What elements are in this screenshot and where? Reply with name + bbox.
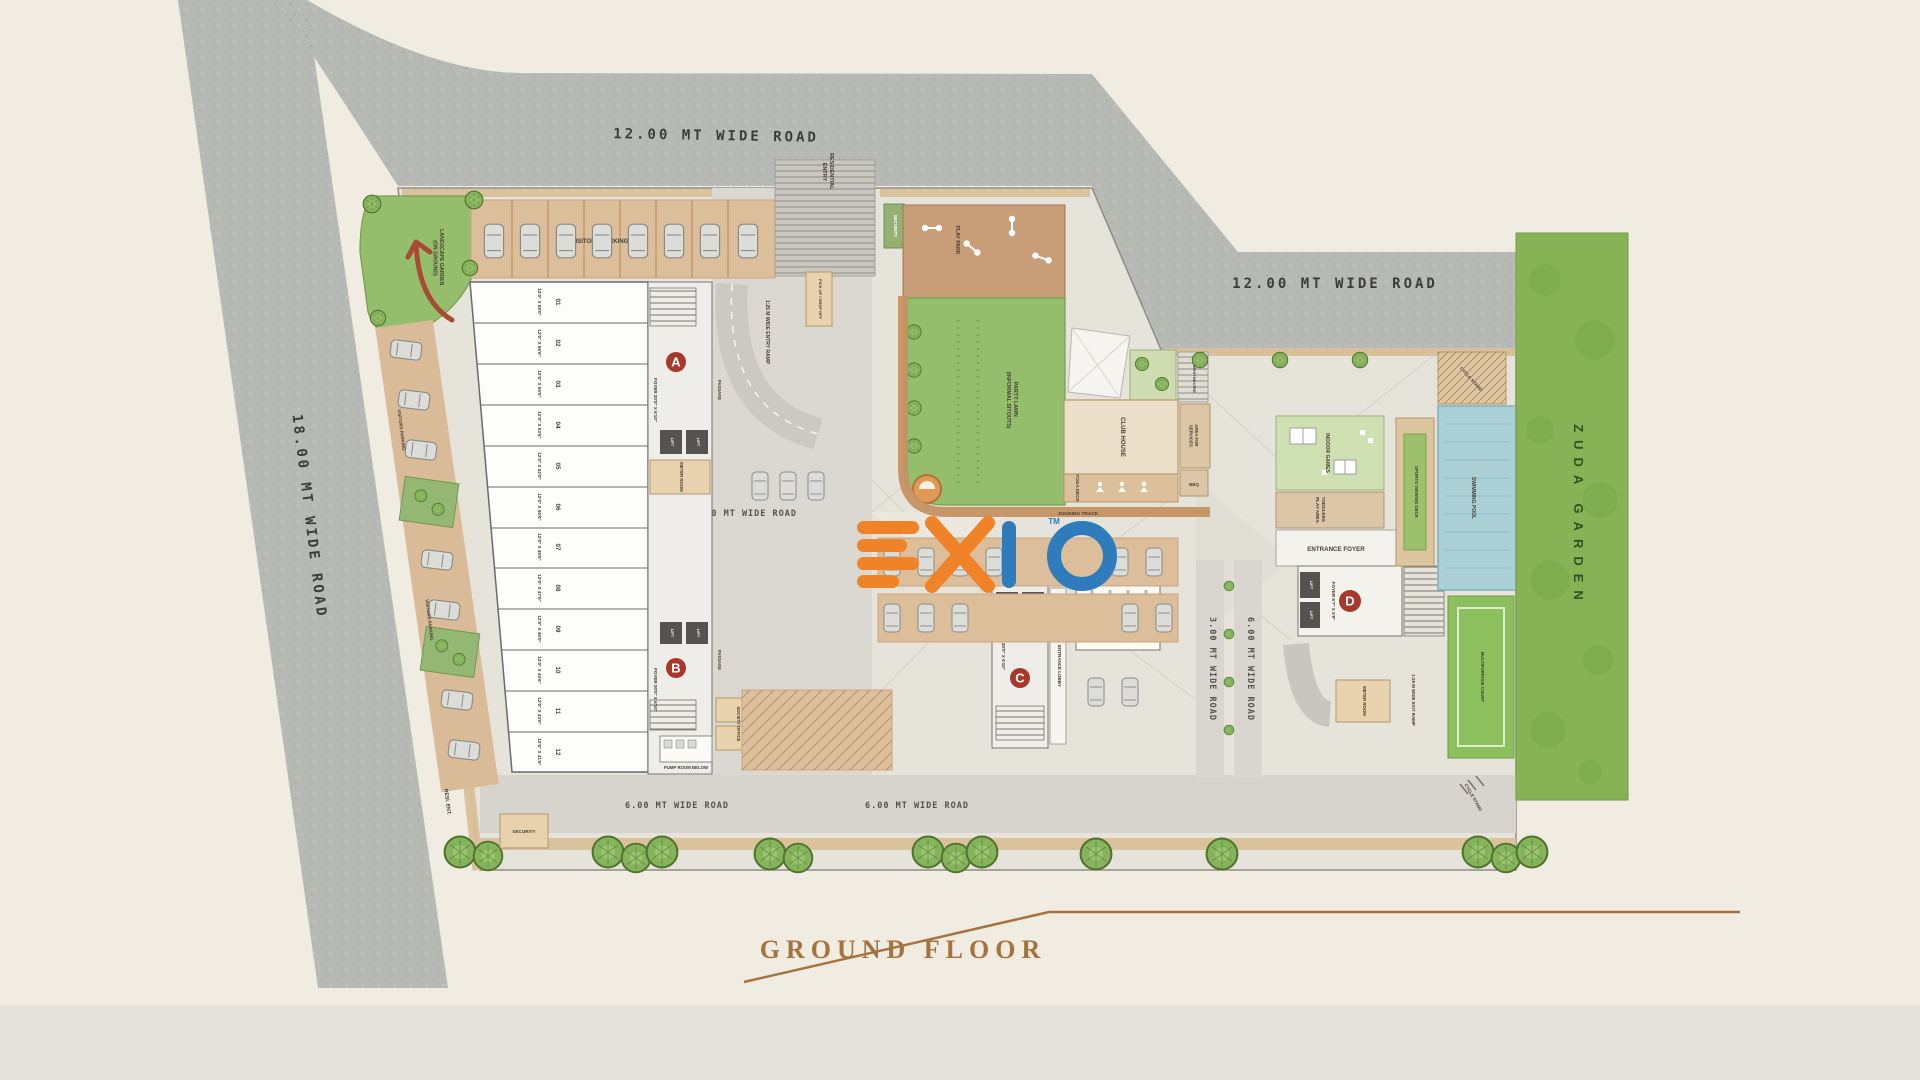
shop-number: 10 [554, 667, 561, 674]
play-park: PLAY PARK [903, 205, 1065, 298]
shop-dim: 12'0" X 55'0" [537, 370, 542, 398]
indoor-games-label: INDOOR GAMES [1324, 433, 1330, 473]
lift-b2-label: LIFT [696, 629, 701, 638]
tower-d-letter: D [1345, 594, 1354, 609]
toddlers-room [1276, 492, 1384, 528]
shop-dim: 12'0" X 53'6" [537, 411, 542, 439]
society-office-label: SOCIETY OFFICE [736, 707, 741, 742]
lift-d2-label: LIFT [1309, 611, 1314, 620]
herringbone-pattern [742, 690, 892, 770]
party-lawn-line1: PARTY LAWN [1012, 382, 1018, 417]
zuda-garden-label: ZUDA GARDEN [1571, 424, 1586, 608]
bbq-label: BBQ [1189, 482, 1199, 487]
logo-letter-i [1002, 521, 1016, 588]
residential-entry-line1: RESIDENTIAL [828, 153, 834, 190]
services-line2: SERVICES [1189, 425, 1194, 447]
shop-number: 11 [554, 708, 561, 715]
shop-dim: 12'0" X 58'0" [537, 288, 542, 316]
exit-ramp-label: 1:25 M WIDE EXIT RAMP [1411, 674, 1416, 726]
page-title: GROUND FLOOR [760, 935, 1047, 964]
lane-label-3m: 3.00 MT WIDE ROAD [1207, 617, 1217, 721]
road-label-right: 12.00 MT WIDE ROAD [1232, 276, 1438, 292]
shop-dim: 12'0" X 49'0" [537, 533, 542, 561]
services-line1: AREA FOR [1194, 424, 1199, 447]
lift-b1-label: LIFT [670, 629, 675, 638]
pump-fixture-3 [688, 740, 696, 748]
party-lawn-line2: (INFORMAL SITOUTS) [1005, 372, 1011, 429]
logo-tm: TM [1048, 517, 1060, 526]
services-label: AREA FOR SERVICES [1189, 424, 1200, 447]
landscape-label-line2: (ON GROUND) [432, 240, 438, 276]
shop-number: 03 [554, 381, 561, 388]
lane-label-6m: 6.00 MT WIDE ROAD [1245, 617, 1255, 721]
shop-number: 04 [554, 422, 561, 429]
bottom-strip [0, 1006, 1920, 1080]
top-parking: VISITORS PARKING [471, 200, 775, 278]
shop-dim: 12'0" X 41'6" [537, 738, 542, 766]
party-lawn-area [903, 298, 1065, 505]
pump-fixture-1 [664, 740, 672, 748]
security-top-label: SECURITY [893, 215, 898, 238]
shop-dim: 12'0" X 46'0" [537, 615, 542, 643]
pump-fixture-2 [676, 740, 684, 748]
stairs-a-icon [650, 288, 696, 326]
meter-room-a-label: METER ROOM [679, 462, 684, 492]
yoga-deck-label: YOGA DECK [1075, 474, 1080, 502]
stairs-b-icon [650, 700, 696, 730]
court-label: MULTIPURPOSE COURT [1480, 652, 1485, 703]
tower-c-letter: C [1015, 671, 1025, 686]
tower-b-letter: B [671, 661, 680, 676]
swimming-pool-label: SWIMMING POOL [1470, 477, 1476, 519]
toddlers-label: TODDLERS PLAY AREA [1315, 497, 1326, 524]
foyer-d-label: FOYER 6'7" X 5'9" [1331, 582, 1336, 621]
security-bottom-group: SECURITY [500, 814, 548, 848]
shop-dim: 12'0" X 52'0" [537, 452, 542, 480]
page-background: 12.00 MT WIDE ROAD 12.00 MT WIDE ROAD 18… [0, 0, 1920, 1080]
club-house-label: CLUB HOUSE [1119, 417, 1125, 457]
toddlers-line1: TODDLERS [1321, 497, 1326, 522]
green-pocket-1 [399, 476, 459, 527]
entrance-foyer-label: ENTRANCE FOYER [1307, 546, 1365, 553]
shop-number: 07 [554, 544, 561, 551]
shop-number: 09 [554, 626, 561, 633]
gazebo-sail-canopy [1068, 328, 1130, 398]
party-lawn: PARTY LAWN (INFORMAL SITOUTS) [903, 298, 1065, 505]
club-zone: AMPHITHEATRE CLUB HOUSE AREA FOR SERVICE… [1064, 328, 1210, 503]
lift-a2-label: LIFT [696, 438, 701, 447]
lift-d1-label: LIFT [1309, 581, 1314, 590]
pump-room-label: PUMP ROOM BELOW [664, 765, 709, 770]
sports-viewing-label: SPORTS VIEWING DECK [1414, 466, 1419, 519]
shop-dim: 12'0" X 50'6" [537, 493, 542, 521]
tower-a-letter: A [671, 355, 681, 370]
swimming-pool [1438, 406, 1516, 590]
drive-cars [752, 472, 824, 500]
shop-number: 12 [554, 749, 561, 756]
shop-dim: 12'0" X 43'0" [537, 697, 542, 725]
road-label-6m-west: 6.00 MT WIDE ROAD [625, 801, 729, 811]
shop-number: 08 [554, 585, 561, 592]
stairs-c-icon [996, 706, 1044, 740]
landscape-label-line1: LANDSCAPE GARDEN [438, 229, 444, 285]
shop-dim: 12'0" X 56'6" [537, 329, 542, 357]
shop-number: 06 [554, 504, 561, 511]
zuda-garden: ZUDA GARDEN [1516, 233, 1628, 800]
shop-number: 05 [554, 463, 561, 470]
passage-b-label: PASSAGE [717, 650, 722, 670]
ground-floor-plan: 12.00 MT WIDE ROAD 12.00 MT WIDE ROAD 18… [0, 0, 1920, 1080]
lift-a1-label: LIFT [670, 438, 675, 447]
shop-dim: 12'0" X 44'6" [537, 656, 542, 684]
shop-number: 01 [554, 299, 561, 306]
play-park-label: PLAY PARK [954, 225, 960, 254]
shop-number: 02 [554, 340, 561, 347]
passage-a-label: PASSAGE [717, 380, 722, 400]
foyer-a-label: FOYER 20'0" X 6'10" [653, 378, 658, 422]
amphitheatre-green [1130, 350, 1176, 402]
play-park-area [903, 205, 1065, 298]
road-label-6m-east: 6.00 MT WIDE ROAD [865, 801, 969, 811]
security-bottom-label: SECURITY [512, 829, 535, 834]
residential-entry-line2: ENTRY [821, 163, 827, 182]
jogging-track-label: JOGGING TRACK [1058, 511, 1099, 517]
pickup-dropoff-label: PICK UP / DROP OFF [818, 279, 823, 320]
entrance-lobby-label: ENTRANCE LOBBY [1057, 645, 1062, 687]
toddlers-line2: PLAY AREA [1315, 497, 1320, 524]
meter-room-d-label: METER ROOM [1362, 686, 1367, 716]
shop-dim: 12'0" X 47'6" [537, 574, 542, 602]
entry-ramp-label: 1:25 M WIDE ENTRY RAMP [764, 300, 770, 365]
yoga-deck [1064, 474, 1178, 502]
